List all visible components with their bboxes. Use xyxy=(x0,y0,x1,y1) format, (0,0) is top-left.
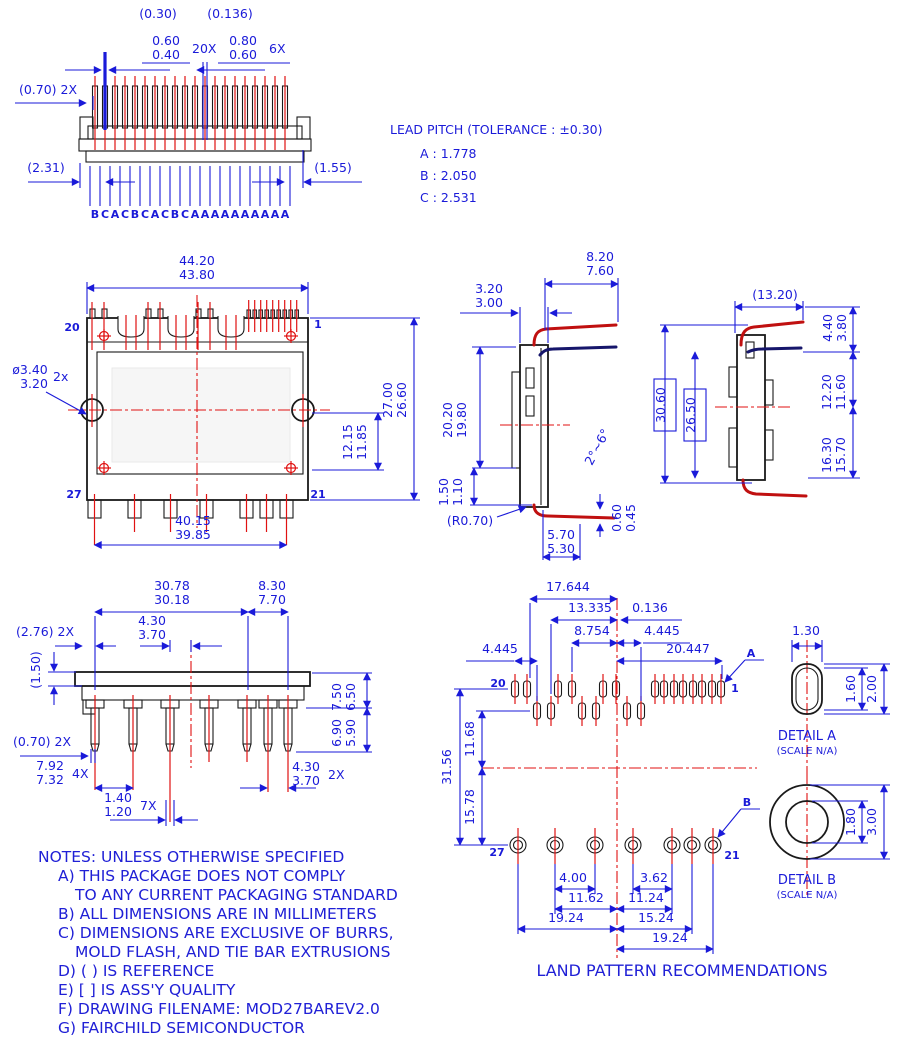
top-view-dimensions: (0.30) (0.136) 0.60 0.40 20X 0.80 0.60 6… xyxy=(15,6,362,188)
pitch-letter: C xyxy=(181,208,189,221)
pitch-letter: B xyxy=(91,208,99,221)
dim-h1-max: 7.50 xyxy=(329,683,344,711)
dim-lead-min: 7.60 xyxy=(586,263,614,278)
dim-4445-left: 4.445 xyxy=(482,641,518,656)
dim-ref-0136: (0.136) xyxy=(207,6,253,21)
dim-4445-right: 4.445 xyxy=(644,623,680,638)
dim-w1-max: 0.60 xyxy=(152,33,180,48)
dim-top-max: 4.40 xyxy=(820,314,835,342)
pin-number-21: 21 xyxy=(724,849,739,862)
note-line: F) DRAWING FILENAME: MOD27BAREV2.0 xyxy=(58,1000,380,1018)
dim-ref-231: (2.31) xyxy=(27,160,65,175)
dim-len-qty: 4X xyxy=(72,766,89,781)
pin-number-21: 21 xyxy=(310,488,325,501)
dim-height-min: 26.60 xyxy=(394,382,409,418)
pin-number-20: 20 xyxy=(64,321,80,334)
dim-1578: 15.78 xyxy=(462,789,477,825)
dim-top-min: 3.00 xyxy=(475,295,503,310)
dim-1924-right: 19.24 xyxy=(652,930,688,945)
top-view-pitch-grid xyxy=(90,166,290,206)
drawing-sheet: B C A C B C A C B C A A A A A A A A A A … xyxy=(0,0,900,1050)
dim-bottom-max: 40.15 xyxy=(175,513,211,528)
dim-ref-276: (2.76) 2X xyxy=(16,624,75,639)
note-line: NOTES: UNLESS OTHERWISE SPECIFIED xyxy=(38,848,344,866)
dim-ref-155: (1.55) xyxy=(314,160,352,175)
pitch-letter: A xyxy=(271,208,280,221)
lead-pitch-a: A : 1.778 xyxy=(420,146,477,161)
pitch-letter: C xyxy=(161,208,169,221)
note-line: C) DIMENSIONS ARE EXCLUSIVE OF BURRS, xyxy=(58,924,394,942)
dim-body-min: 19.80 xyxy=(454,402,469,438)
lead-pitch-note: LEAD PITCH (TOLERANCE : ±0.30) A : 1.778… xyxy=(390,122,603,205)
dim-stand-max: 1.50 xyxy=(436,478,451,506)
dim-hole-qty: 2x xyxy=(53,369,68,384)
land-pattern-title: LAND PATTERN RECOMMENDATIONS xyxy=(536,961,827,980)
dim-foot-max: 5.70 xyxy=(547,527,575,542)
dim-upper-min: 11.60 xyxy=(833,374,848,410)
leader-label-a: A xyxy=(747,647,756,660)
pitch-letter: A xyxy=(261,208,270,221)
dim-1162: 11.62 xyxy=(568,890,604,905)
dim-13335: 13.335 xyxy=(568,600,612,615)
dim-right-max: 8.30 xyxy=(258,578,286,593)
dim-right-min: 7.70 xyxy=(258,592,286,607)
pitch-letter: A xyxy=(191,208,200,221)
detail-a-scale: (SCALE N/A) xyxy=(777,746,838,757)
dim-width-min: 43.80 xyxy=(179,267,215,282)
dim-top-max: 3.20 xyxy=(475,281,503,296)
dim-tip-qty: 7X xyxy=(140,798,157,813)
dim-detail-b-inner: 1.80 xyxy=(843,808,858,836)
pitch-letter: A xyxy=(211,208,220,221)
note-line: TO ANY CURRENT PACKAGING STANDARD xyxy=(74,886,398,904)
dim-w2-max: 0.80 xyxy=(229,33,257,48)
pin-number-1: 1 xyxy=(314,318,322,331)
note-line: MOLD FLASH, AND TIE BAR EXTRUSIONS xyxy=(75,943,390,961)
dim-center-max: 4.30 xyxy=(138,613,166,628)
dim-400: 4.00 xyxy=(559,870,587,885)
bottom-view-dimensions: 30.78 30.18 8.30 7.70 4.30 3.70 (2.76) 2… xyxy=(13,578,372,826)
dim-detail-a-inner: 1.60 xyxy=(843,675,858,703)
dim-h2-min: 5.90 xyxy=(343,719,358,747)
dim-len-max: 7.92 xyxy=(36,758,64,773)
dim-span-max: 30.78 xyxy=(154,578,190,593)
pitch-letter: C xyxy=(101,208,109,221)
leader-label-b: B xyxy=(743,796,751,809)
dim-lower-min: 15.70 xyxy=(833,437,848,473)
note-line: B) ALL DIMENSIONS ARE IN MILLIMETERS xyxy=(58,905,377,923)
dim-top-min: 3.80 xyxy=(834,314,849,342)
dim-8754: 8.754 xyxy=(574,623,610,638)
pitch-letter: A xyxy=(281,208,290,221)
dim-w1-qty: 20X xyxy=(192,41,217,56)
pitch-letter: A xyxy=(231,208,240,221)
dim-w2-min: 0.60 xyxy=(229,47,257,62)
note-line: D) ( ) IS REFERENCE xyxy=(58,962,214,980)
pin-number-27: 27 xyxy=(66,488,81,501)
dim-width-max: 44.20 xyxy=(179,253,215,268)
note-line: A) THIS PACKAGE DOES NOT COMPLY xyxy=(58,867,346,885)
lead-pitch-c: C : 2.531 xyxy=(420,190,477,205)
detail-b-scale: (SCALE N/A) xyxy=(777,890,838,901)
dim-detail-a-outer: 2.00 xyxy=(864,675,879,703)
dim-ref-width: (13.20) xyxy=(752,287,798,302)
dim-overall-boxed: 30.60 xyxy=(653,387,668,423)
dim-1168: 11.68 xyxy=(462,721,477,757)
dim-362: 3.62 xyxy=(640,870,668,885)
pitch-letter: C xyxy=(141,208,149,221)
dim-h1-min: 6.50 xyxy=(343,683,358,711)
dim-detail-a-width: 1.30 xyxy=(792,623,820,638)
engineering-drawing: B C A C B C A C B C A A A A A A A A A A … xyxy=(0,0,900,1050)
dim-height-max: 27.00 xyxy=(380,382,395,418)
dim-span-min: 30.18 xyxy=(154,592,190,607)
note-line: E) [ ] IS ASS'Y QUALITY xyxy=(58,981,236,999)
dim-len-min: 7.32 xyxy=(36,772,64,787)
dim-center-min: 3.70 xyxy=(138,627,166,642)
dim-pitch-min: 3.70 xyxy=(292,773,320,788)
pin-number-27: 27 xyxy=(489,846,504,859)
land-pattern-dimensions: 17.644 13.335 0.136 8.754 4.445 4.445 20… xyxy=(439,579,828,980)
dim-stand-min: 1.10 xyxy=(450,478,465,506)
pitch-letter: A xyxy=(251,208,260,221)
dim-upper-max: 12.20 xyxy=(819,374,834,410)
dim-pitch-qty: 2X xyxy=(328,767,345,782)
end-view-dimensions: (13.20) 4.40 3.80 12.20 11.60 16.30 15.7… xyxy=(653,287,860,483)
dim-1924-left: 19.24 xyxy=(548,910,584,925)
dim-20447: 20.447 xyxy=(666,641,710,656)
dim-hole-min: 3.20 xyxy=(20,376,48,391)
dim-radius-ref: (R0.70) xyxy=(447,513,493,528)
dim-mid-max: 12.15 xyxy=(340,424,355,460)
pitch-letter: B xyxy=(131,208,139,221)
dim-lead-max: 8.20 xyxy=(586,249,614,264)
pitch-letter: A xyxy=(151,208,160,221)
side-view-body xyxy=(500,325,616,518)
dim-1524: 15.24 xyxy=(638,910,674,925)
dim-lower-max: 16.30 xyxy=(819,437,834,473)
dim-angle: 2°~6° xyxy=(581,426,613,467)
dim-0136: 0.136 xyxy=(632,600,668,615)
dim-w2-qty: 6X xyxy=(269,41,286,56)
notes-block: NOTES: UNLESS OTHERWISE SPECIFIED A) THI… xyxy=(38,848,398,1037)
dim-ref-030: (0.30) xyxy=(139,6,177,21)
dim-detail-b-outer: 3.00 xyxy=(864,808,879,836)
lead-pitch-b: B : 2.050 xyxy=(420,168,477,183)
dim-w1-min: 0.40 xyxy=(152,47,180,62)
dim-thk-max: 0.60 xyxy=(609,504,624,532)
pitch-letter: A xyxy=(111,208,120,221)
dim-tip-max: 1.40 xyxy=(104,790,132,805)
pin-number-1: 1 xyxy=(731,682,739,695)
pitch-letter: A xyxy=(221,208,230,221)
dim-ref-070: (0.70) 2X xyxy=(13,734,72,749)
dim-17644: 17.644 xyxy=(546,579,590,594)
pitch-letter: C xyxy=(121,208,129,221)
dim-3156: 31.56 xyxy=(439,749,454,785)
note-line: G) FAIRCHILD SEMICONDUCTOR xyxy=(58,1019,305,1037)
dim-1124: 11.24 xyxy=(628,890,664,905)
detail-a-label: DETAIL A xyxy=(778,729,836,744)
detail-b: 1.80 3.00 DETAIL B (SCALE N/A) xyxy=(770,772,890,901)
land-pattern-pads xyxy=(482,598,757,958)
dim-ref-150: (1.50) xyxy=(28,651,43,689)
dim-bottom-min: 39.85 xyxy=(175,527,211,542)
top-view-pitch-letters: B C A C B C A C B C A A A A A A A A A A xyxy=(91,208,290,221)
dim-hole-max: ø3.40 xyxy=(12,362,48,377)
detail-b-label: DETAIL B xyxy=(778,873,836,888)
dim-body-max: 20.20 xyxy=(440,402,455,438)
dim-inner-boxed: 26.50 xyxy=(683,397,698,433)
lead-pitch-title: LEAD PITCH (TOLERANCE : ±0.30) xyxy=(390,122,603,137)
dim-tip-min: 1.20 xyxy=(104,804,132,819)
dim-h2-max: 6.90 xyxy=(329,719,344,747)
dim-thk-min: 0.45 xyxy=(623,504,638,532)
pitch-letter: B xyxy=(171,208,179,221)
pitch-letter: A xyxy=(201,208,210,221)
dim-foot-min: 5.30 xyxy=(547,541,575,556)
dim-ref-070: (0.70) 2X xyxy=(19,82,78,97)
end-view-body xyxy=(715,322,806,496)
dim-mid-min: 11.85 xyxy=(354,424,369,460)
top-view-pins xyxy=(93,52,288,150)
pin-number-20: 20 xyxy=(490,677,506,690)
detail-a: 1.30 1.60 2.00 DETAIL A (SCALE N/A) xyxy=(777,623,890,772)
dim-pitch-max: 4.30 xyxy=(292,759,320,774)
pitch-letter: A xyxy=(241,208,250,221)
